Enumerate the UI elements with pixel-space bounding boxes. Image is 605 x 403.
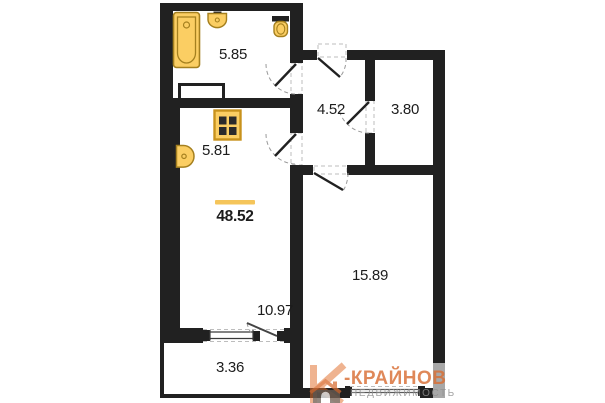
door-swing-balcony <box>247 323 277 336</box>
balcony-window <box>203 330 284 342</box>
room-label-bathroom: 5.85 <box>219 46 247 63</box>
door-swing-entrance <box>318 58 346 77</box>
sink-icon <box>208 12 227 28</box>
room-label-hallway: 4.52 <box>317 101 345 118</box>
toilet-icon <box>272 16 289 37</box>
room-label-kitchen: 5.81 <box>202 142 230 159</box>
total-area-label: 48.52 <box>216 208 253 225</box>
watermark: -КРАЙНОВ НЕДВИЖИМОСТЬ <box>302 352 452 403</box>
brand-logo-icon <box>302 352 348 403</box>
room-label-balcony: 3.36 <box>216 359 244 376</box>
watermark-brand-text: -КРАЙНОВ <box>344 369 447 388</box>
total-area-underline <box>215 200 255 205</box>
stove-icon <box>215 111 241 140</box>
door-swing-bedroom <box>314 173 348 191</box>
room-label-bedroom: 15.89 <box>352 267 388 284</box>
vent-niche <box>178 83 225 100</box>
watermark-subtitle-text: НЕДВИЖИМОСТЬ <box>350 389 456 399</box>
kitchen-sink-icon <box>172 146 194 168</box>
floor-plan-drawing: 5.85 4.52 3.80 5.81 48.52 15.89 10.97 3.… <box>0 0 605 403</box>
bathtub-icon <box>174 13 200 68</box>
room-label-living-room: 10.97 <box>257 302 293 319</box>
floor-plan-page: 5.85 4.52 3.80 5.81 48.52 15.89 10.97 3.… <box>0 0 605 403</box>
room-label-storage: 3.80 <box>391 101 419 118</box>
walls <box>160 3 445 398</box>
